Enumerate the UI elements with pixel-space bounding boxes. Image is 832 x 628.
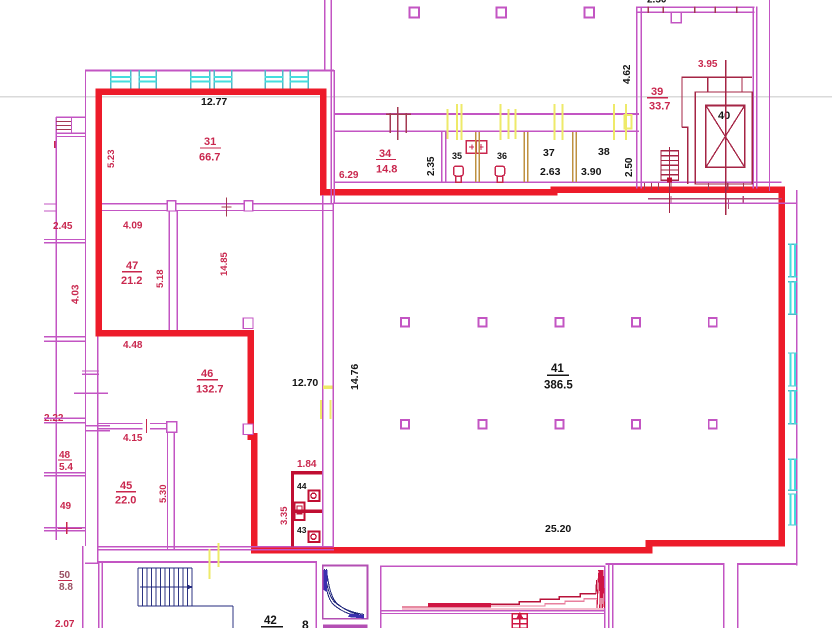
svg-text:8: 8 [302,618,309,628]
svg-text:40: 40 [718,110,730,122]
svg-text:12.70: 12.70 [292,377,318,389]
svg-text:386.5: 386.5 [544,380,573,392]
svg-text:37: 37 [543,147,555,159]
svg-text:2.45: 2.45 [53,221,73,232]
svg-text:45: 45 [120,480,132,492]
svg-text:2.07: 2.07 [55,619,75,628]
svg-text:50: 50 [59,570,71,581]
svg-text:6.29: 6.29 [339,170,359,181]
svg-text:2.50: 2.50 [624,157,635,177]
svg-text:12.77: 12.77 [201,96,227,108]
svg-text:35: 35 [452,151,462,161]
svg-text:42: 42 [264,615,277,627]
svg-text:39: 39 [651,86,663,98]
svg-text:4.62: 4.62 [622,64,633,84]
svg-text:34: 34 [379,148,392,160]
svg-text:33.7: 33.7 [649,101,670,113]
svg-text:3.95: 3.95 [698,59,718,70]
svg-text:132.7: 132.7 [196,384,224,396]
svg-text:1.84: 1.84 [297,459,317,470]
svg-text:4.03: 4.03 [71,284,82,304]
svg-text:48: 48 [59,450,71,461]
svg-text:43: 43 [297,525,307,535]
svg-text:14.85: 14.85 [219,252,230,276]
svg-text:5.18: 5.18 [155,270,166,289]
svg-text:22.0: 22.0 [115,495,136,507]
svg-text:4.15: 4.15 [123,433,143,444]
svg-text:66.7: 66.7 [199,152,220,164]
svg-text:41: 41 [551,363,564,375]
svg-text:14.8: 14.8 [376,164,397,176]
svg-text:36: 36 [497,151,507,161]
svg-text:2.35: 2.35 [426,156,437,176]
svg-text:5.23: 5.23 [106,150,117,169]
svg-text:3.35: 3.35 [279,506,290,525]
svg-text:38: 38 [598,146,610,158]
svg-text:49: 49 [60,501,72,512]
svg-text:4.09: 4.09 [123,221,143,232]
svg-text:4.48: 4.48 [123,340,143,351]
svg-text:31: 31 [204,136,216,148]
svg-text:5.4: 5.4 [59,462,73,473]
svg-text:25.20: 25.20 [545,523,571,535]
svg-text:3.90: 3.90 [581,166,602,178]
svg-text:14.76: 14.76 [349,364,361,390]
svg-text:21.2: 21.2 [121,275,142,287]
svg-text:8.8: 8.8 [59,582,73,593]
svg-text:2.63: 2.63 [540,166,561,178]
svg-text:47: 47 [126,260,138,272]
svg-text:46: 46 [201,368,213,380]
svg-text:44: 44 [297,481,307,491]
svg-text:2.50: 2.50 [647,0,667,6]
